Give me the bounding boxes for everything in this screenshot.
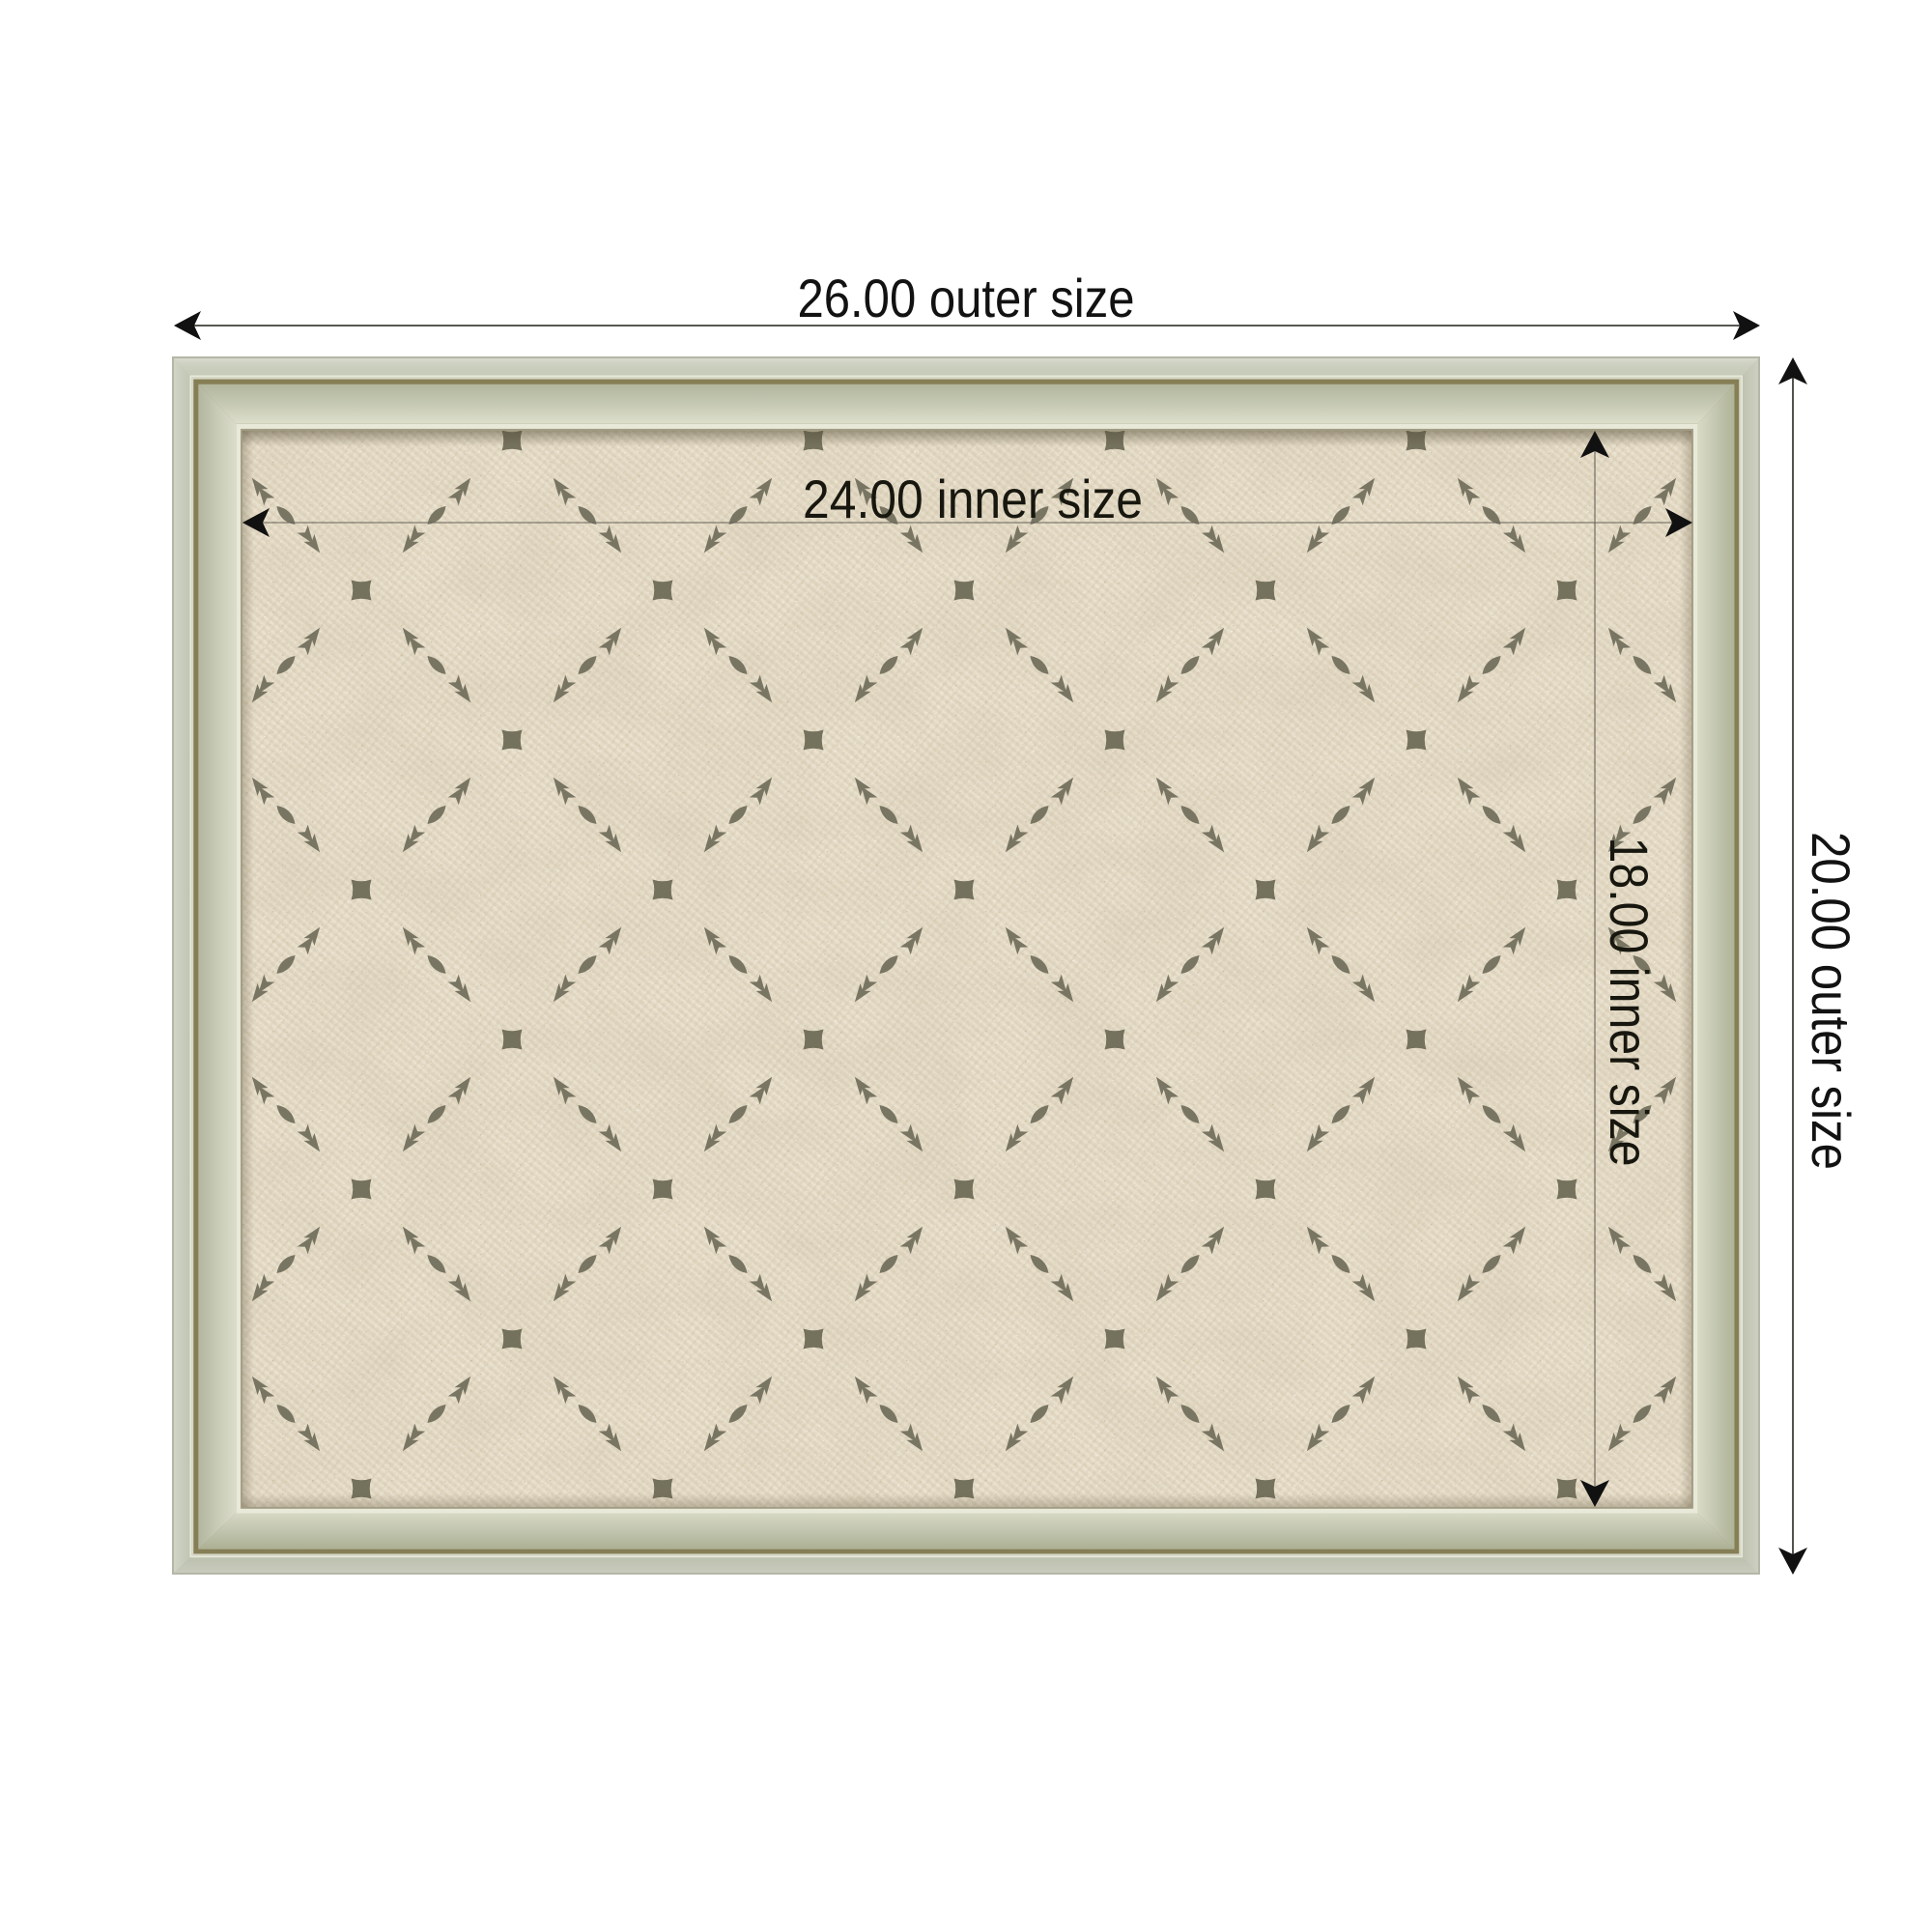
svg-text:26.00 outer size: 26.00 outer size <box>798 268 1135 328</box>
svg-text:18.00 inner size: 18.00 inner size <box>1599 838 1660 1167</box>
svg-text:24.00 inner size: 24.00 inner size <box>803 469 1143 529</box>
svg-text:20.00 outer size: 20.00 outer size <box>1801 832 1861 1170</box>
